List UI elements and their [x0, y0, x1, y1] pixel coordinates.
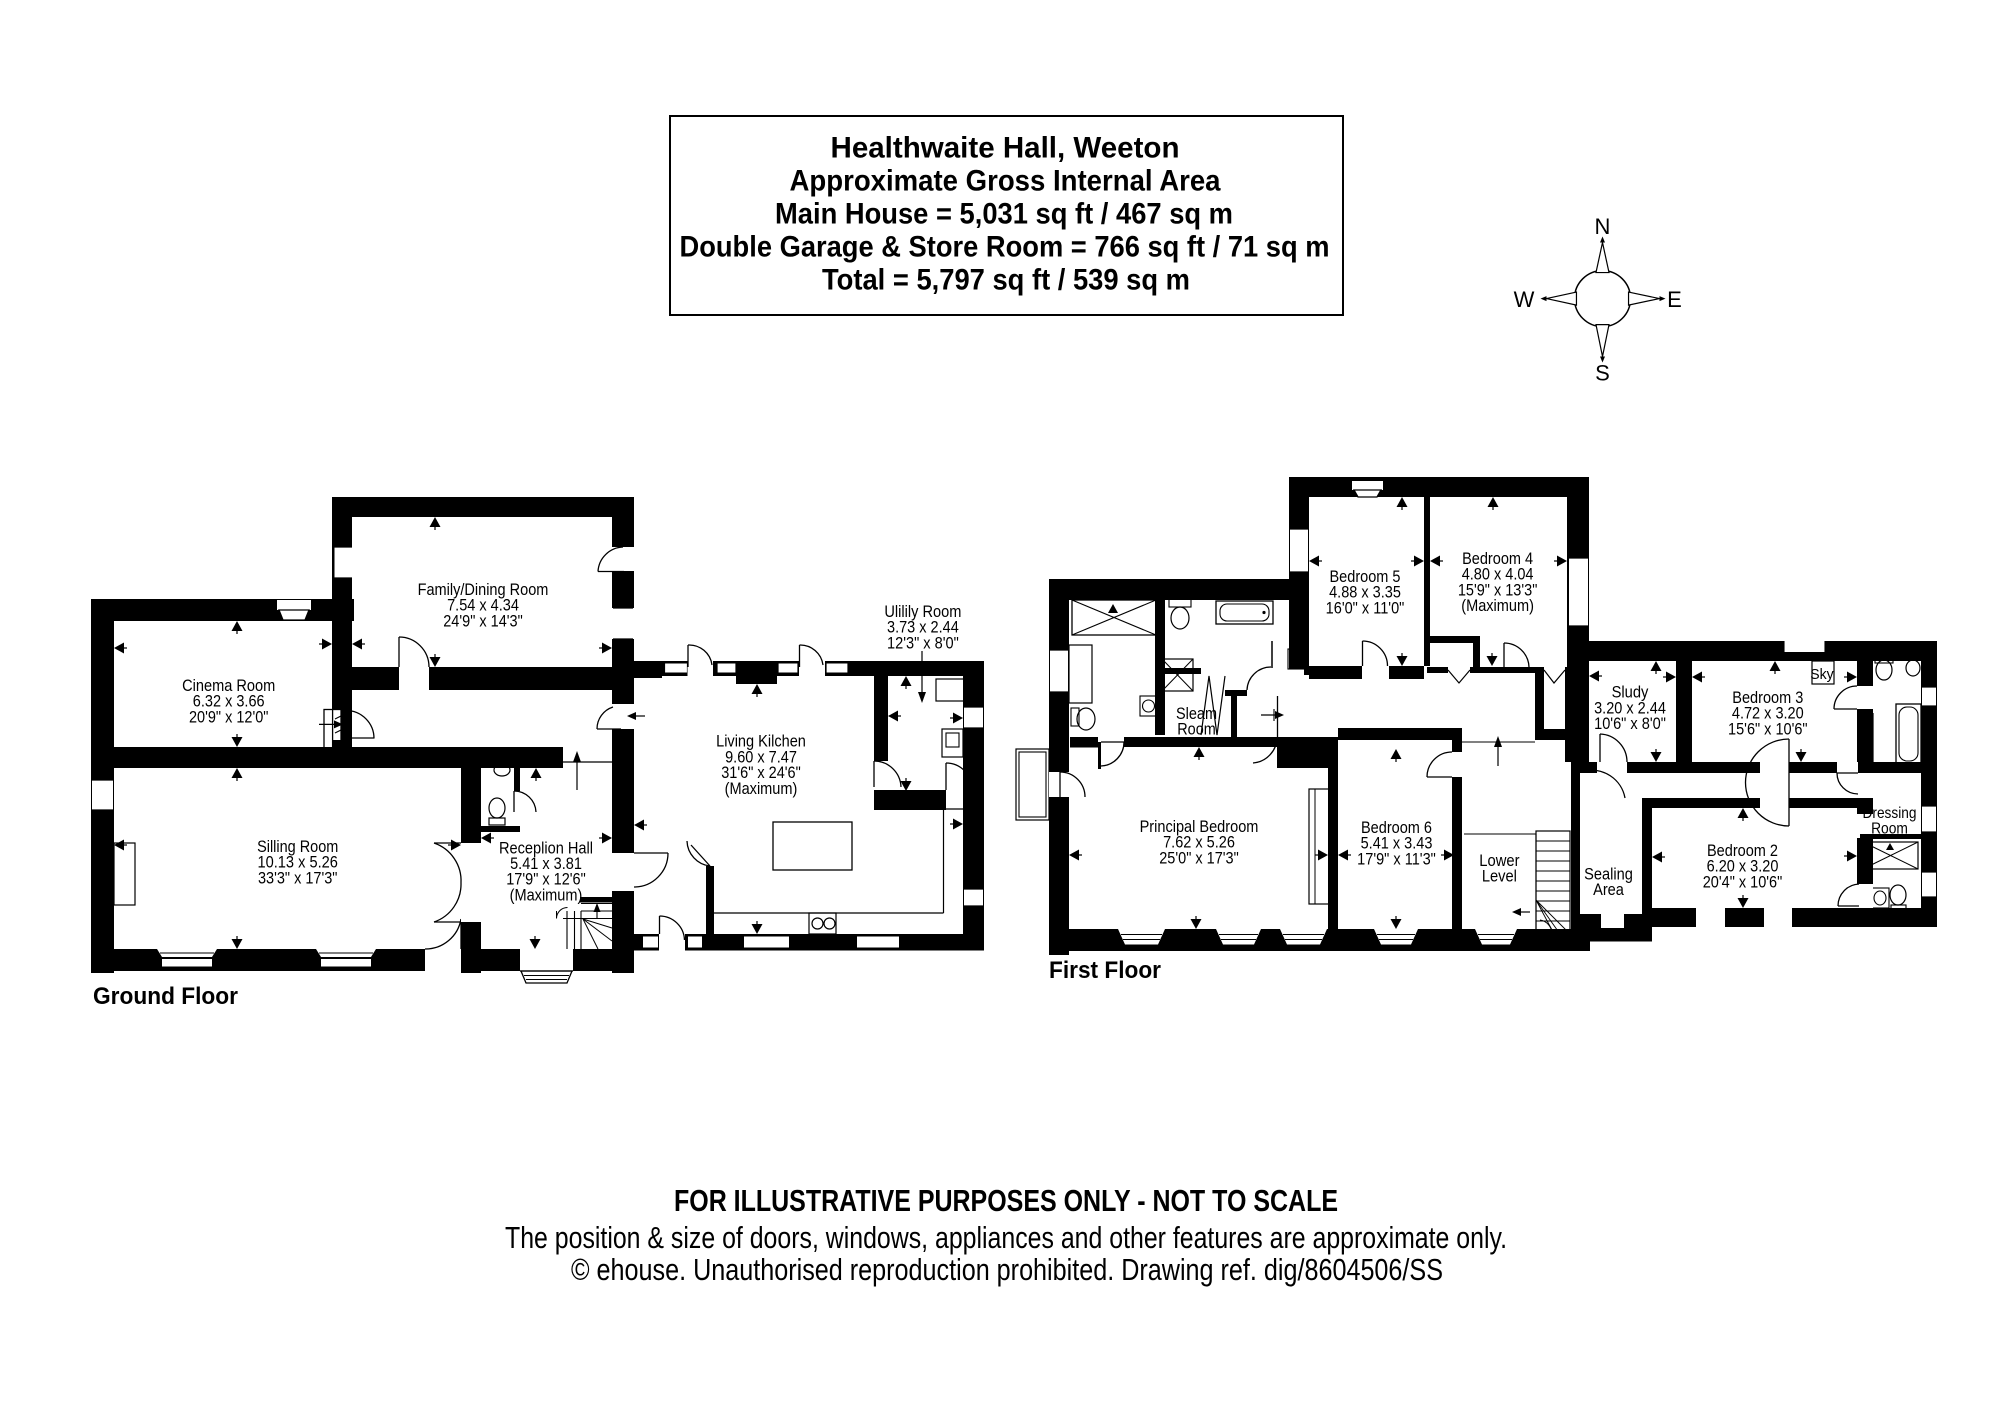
svg-text:33'3" x 17'3": 33'3" x 17'3": [258, 868, 338, 887]
svg-text:© ehouse. Unauthorised reprodu: © ehouse. Unauthorised reproduction proh…: [571, 1252, 1443, 1287]
svg-text:Main House = 5,031 sq ft / 467: Main House = 5,031 sq ft / 467 sq m: [775, 198, 1233, 231]
svg-text:25'0" x 17'3": 25'0" x 17'3": [1159, 848, 1239, 867]
svg-text:Total = 5,797 sq ft / 539 sq m: Total = 5,797 sq ft / 539 sq m: [822, 264, 1190, 297]
svg-text:Room: Room: [1871, 821, 1908, 838]
svg-text:The position & size of doors,: The position & size of doors, windows, a…: [505, 1220, 1507, 1255]
svg-text:First Floor: First Floor: [1049, 957, 1161, 984]
svg-text:Level: Level: [1482, 867, 1517, 886]
svg-text:20'9" x 12'0": 20'9" x 12'0": [189, 707, 269, 726]
svg-text:15'6" x 10'6": 15'6" x 10'6": [1728, 719, 1808, 738]
svg-text:12'3" x 8'0": 12'3" x 8'0": [887, 633, 959, 652]
svg-text:Dressing: Dressing: [1863, 805, 1917, 822]
svg-text:N: N: [1595, 214, 1611, 239]
svg-text:(Maximum): (Maximum): [725, 779, 798, 798]
svg-text:E: E: [1667, 287, 1682, 312]
svg-text:W: W: [1514, 287, 1535, 312]
svg-text:Room: Room: [1177, 720, 1216, 739]
svg-text:Area: Area: [1593, 880, 1624, 899]
svg-text:Approximate Gross Internal Are: Approximate Gross Internal Area: [790, 165, 1221, 198]
svg-text:(Maximum): (Maximum): [1461, 596, 1534, 615]
svg-text:24'9" x 14'3": 24'9" x 14'3": [443, 611, 523, 630]
svg-text:Ground Floor: Ground Floor: [93, 983, 238, 1010]
svg-text:17'9" x 11'3": 17'9" x 11'3": [1357, 849, 1436, 868]
svg-text:16'0" x 11'0": 16'0" x 11'0": [1326, 598, 1405, 617]
svg-text:Double Garage & Store Room = 7: Double Garage & Store Room = 766 sq ft /…: [680, 231, 1330, 264]
svg-text:10'6" x 8'0": 10'6" x 8'0": [1594, 714, 1666, 733]
svg-text:20'4" x 10'6": 20'4" x 10'6": [1703, 872, 1783, 891]
svg-text:FOR ILLUSTRATIVE PURPOSES ONLY: FOR ILLUSTRATIVE PURPOSES ONLY - NOT TO …: [674, 1183, 1338, 1218]
svg-text:Sky: Sky: [1810, 666, 1834, 683]
svg-text:S: S: [1595, 361, 1610, 386]
svg-text:(Maximum): (Maximum): [510, 885, 583, 904]
svg-text:Healthwaite Hall, Weeton: Healthwaite Hall, Weeton: [831, 132, 1180, 165]
